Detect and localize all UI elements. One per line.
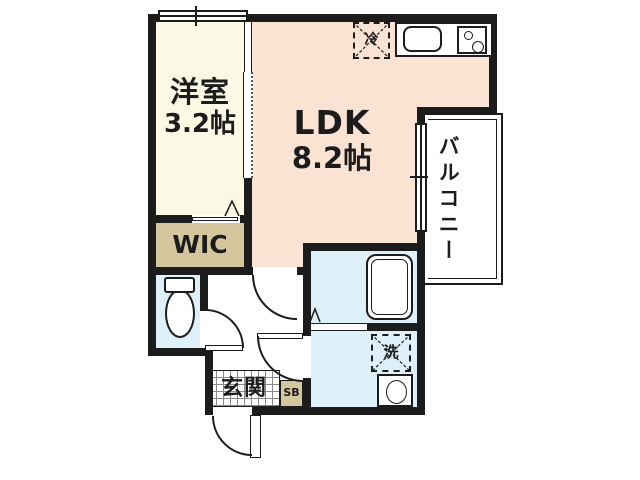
entrance-hall-door-leaf (257, 333, 303, 339)
room-hallway (208, 275, 303, 372)
partition-sliding-door (243, 72, 253, 178)
bathtub-icon (366, 254, 413, 320)
wall-left (148, 14, 156, 356)
wall-toilet-bottom (148, 348, 213, 356)
window-pane-line (160, 15, 246, 17)
toilet-tank-icon (164, 277, 195, 293)
refrigerator-label: 冷 (353, 22, 390, 59)
burner-icon (464, 31, 473, 40)
entrance-label: 玄関 (208, 372, 280, 406)
wall-wic-top-left (148, 215, 192, 223)
toilet-bowl-icon (165, 289, 195, 338)
wall-hall-right-upper (303, 243, 311, 336)
western-room-label: 洋室 3.2帖 (156, 68, 244, 148)
wall-step (417, 107, 497, 115)
western-room-size: 3.2帖 (164, 110, 236, 140)
wic-door-panel (192, 217, 238, 221)
window-pane-line (420, 125, 422, 230)
wic-label: WIC (156, 223, 244, 267)
ldk-size: 8.2帖 (292, 142, 372, 175)
wall-hall-right-lower (303, 378, 311, 415)
kitchen-sink-icon (403, 26, 442, 52)
balcony-label: バルコニー (432, 125, 464, 275)
floor-plan: 洋室 3.2帖 LDK 8.2帖 WIC バルコニー 玄関 SB 冷 洗 (0, 0, 640, 480)
toilet-door-leaf (205, 345, 243, 351)
wall-wic-bottom (148, 267, 253, 275)
wall-partition-lower (244, 178, 252, 275)
balcony-sliding-window (415, 123, 427, 232)
wall-bottom-right (303, 407, 425, 415)
western-room-name: 洋室 (164, 76, 236, 109)
wall-bottom-entrance (252, 407, 310, 415)
bathtub-inner (371, 259, 408, 315)
ldk-label: LDK 8.2帖 (262, 100, 402, 180)
front-door-leaf (250, 415, 261, 458)
ldk-name: LDK (292, 104, 372, 142)
wash-basin-unit (377, 374, 413, 407)
wall-toilet-right (200, 275, 208, 311)
wall-bath-washroom (367, 323, 425, 331)
shoe-box-label: SB (280, 380, 303, 407)
burner-icon (472, 41, 484, 53)
wall-bath-top (303, 243, 425, 251)
stove-icon (457, 26, 487, 54)
washing-machine-label: 洗 (371, 334, 411, 372)
bathroom-folding-door (311, 323, 367, 331)
front-door-swing (213, 416, 252, 455)
partition-track (244, 22, 252, 72)
wash-basin-icon (386, 380, 407, 404)
western-room-window (158, 10, 248, 22)
